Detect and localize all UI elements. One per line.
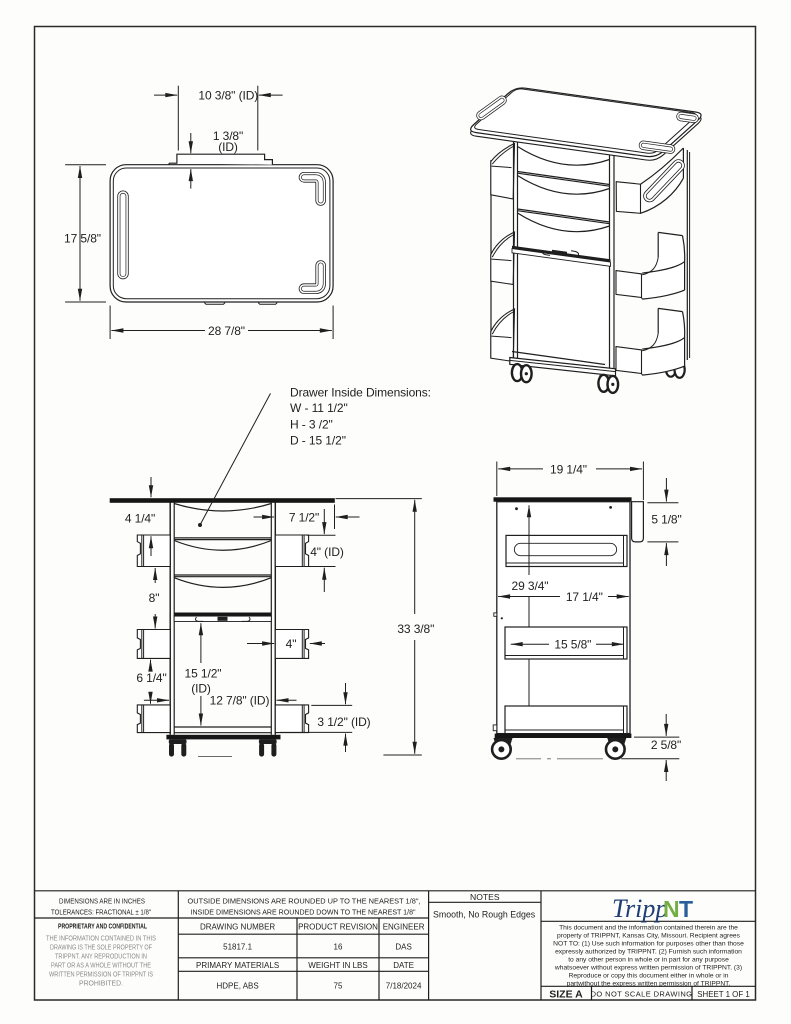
svg-text:7 1/2": 7 1/2" <box>289 511 319 525</box>
svg-text:2 5/8": 2 5/8" <box>651 738 681 752</box>
svg-text:whatsoever without express wr: whatsoever without express written permi… <box>554 964 742 971</box>
svg-text:6 1/4": 6 1/4" <box>136 671 166 685</box>
svg-text:WEIGHT IN LBS: WEIGHT IN LBS <box>308 961 367 970</box>
svg-text:DIMENSIONS ARE IN INCHES: DIMENSIONS ARE IN INCHES <box>59 897 145 906</box>
svg-text:Smooth, No Rough Edges: Smooth, No Rough Edges <box>433 910 536 920</box>
svg-text:Drawer Inside Dimensions:: Drawer Inside Dimensions: <box>290 386 431 400</box>
svg-text:75: 75 <box>334 982 343 991</box>
svg-text:THE INFORMATION CONTAINED IN T: THE INFORMATION CONTAINED IN THIS <box>46 936 156 943</box>
svg-text:Reproduce or copy this documen: Reproduce or copy this document either i… <box>569 972 729 979</box>
svg-text:TOLERANCES: FRACTIONAL ± 1/8": TOLERANCES: FRACTIONAL ± 1/8" <box>51 908 151 917</box>
svg-text:W - 11 1/2": W - 11 1/2" <box>290 401 348 415</box>
svg-text:Tripp: Tripp <box>612 894 668 923</box>
svg-text:19 1/4": 19 1/4" <box>550 462 587 476</box>
svg-text:H - 3 /2": H - 3 /2" <box>290 418 333 432</box>
svg-text:property of TRIPPNT, Kansas Ci: property of TRIPPNT, Kansas City, Missou… <box>557 932 741 939</box>
svg-text:expressly authorized by TRIPPN: expressly authorized by TRIPPNT. (2) Fur… <box>555 948 742 955</box>
svg-text:4 1/4": 4 1/4" <box>125 512 155 526</box>
svg-text:4" (ID): 4" (ID) <box>310 545 344 559</box>
svg-text:7/18/2024: 7/18/2024 <box>386 982 422 991</box>
svg-text:NOTES: NOTES <box>470 892 500 902</box>
svg-text:PRODUCT REVISION: PRODUCT REVISION <box>298 923 378 932</box>
svg-text:DRAWING IS THE SOLE PROPERTY O: DRAWING IS THE SOLE PROPERTY OF <box>50 945 152 952</box>
svg-text:15 1/2": 15 1/2" <box>185 667 222 681</box>
svg-text:DO NOT SCALE DRAWING: DO NOT SCALE DRAWING <box>591 990 693 999</box>
svg-text:HDPE, ABS: HDPE, ABS <box>216 982 258 991</box>
svg-text:51817.1: 51817.1 <box>223 943 252 952</box>
svg-text:NOT TO: (1) Use such informati: NOT TO: (1) Use such information for pur… <box>553 940 744 947</box>
svg-text:OUTSIDE DIMENSIONS ARE ROUNDED: OUTSIDE DIMENSIONS ARE ROUNDED UP TO THE… <box>188 897 421 906</box>
svg-text:10 3/8" (ID): 10 3/8" (ID) <box>198 89 258 103</box>
svg-text:16: 16 <box>334 943 343 952</box>
svg-text:(ID): (ID) <box>218 140 238 154</box>
svg-text:SIZE A: SIZE A <box>549 989 583 1001</box>
svg-text:D - 15 1/2": D - 15 1/2" <box>290 434 346 448</box>
svg-text:DAS: DAS <box>395 943 411 952</box>
svg-text:DRAWING NUMBER: DRAWING NUMBER <box>200 923 275 932</box>
svg-text:PART OR AS A WHOLE WITHOUT THE: PART OR AS A WHOLE WITHOUT THE <box>51 963 151 970</box>
svg-text:partwithout the express writte: partwithout the express written permissi… <box>567 980 731 987</box>
svg-text:12 7/8" (ID): 12 7/8" (ID) <box>210 693 270 707</box>
svg-text:29 3/4": 29 3/4" <box>512 579 549 593</box>
svg-text:5 1/8": 5 1/8" <box>651 513 681 527</box>
svg-text:3 1/2" (ID): 3 1/2" (ID) <box>317 715 370 729</box>
svg-text:PROPRIETARY AND CONFIDENTIAL: PROPRIETARY AND CONFIDENTIAL <box>58 924 147 931</box>
svg-text:TRIPPNT. ANY REPRODUCTION IN: TRIPPNT. ANY REPRODUCTION IN <box>55 954 147 961</box>
svg-text:WRITTEN PERMISSION OF TRIPPNT: WRITTEN PERMISSION OF TRIPPNT IS <box>49 972 153 979</box>
svg-text:17 1/4": 17 1/4" <box>566 590 603 604</box>
svg-text:33 3/8": 33 3/8" <box>397 622 434 636</box>
svg-text:17 5/8": 17 5/8" <box>64 232 101 246</box>
svg-text:DATE: DATE <box>393 961 414 970</box>
svg-text:8": 8" <box>149 591 160 605</box>
svg-text:to any other person in whole o: to any other person in whole or in part … <box>568 956 729 963</box>
svg-text:This document and the informat: This document and the information contai… <box>559 924 738 931</box>
svg-text:(ID): (ID) <box>191 682 211 696</box>
svg-text:T: T <box>679 896 693 922</box>
svg-text:PRIMARY MATERIALS: PRIMARY MATERIALS <box>196 961 279 970</box>
svg-text:15 5/8": 15 5/8" <box>554 638 591 652</box>
svg-text:28 7/8": 28 7/8" <box>208 324 245 338</box>
svg-text:PROHIBITED.: PROHIBITED. <box>79 981 123 988</box>
svg-text:INSIDE DIMENSIONS ARE ROUNDED: INSIDE DIMENSIONS ARE ROUNDED DOWN TO TH… <box>191 908 416 917</box>
svg-text:4": 4" <box>286 637 297 651</box>
svg-text:SHEET 1 OF 1: SHEET 1 OF 1 <box>697 990 749 999</box>
svg-text:N: N <box>663 896 680 922</box>
svg-text:ENGINEER: ENGINEER <box>383 923 425 932</box>
